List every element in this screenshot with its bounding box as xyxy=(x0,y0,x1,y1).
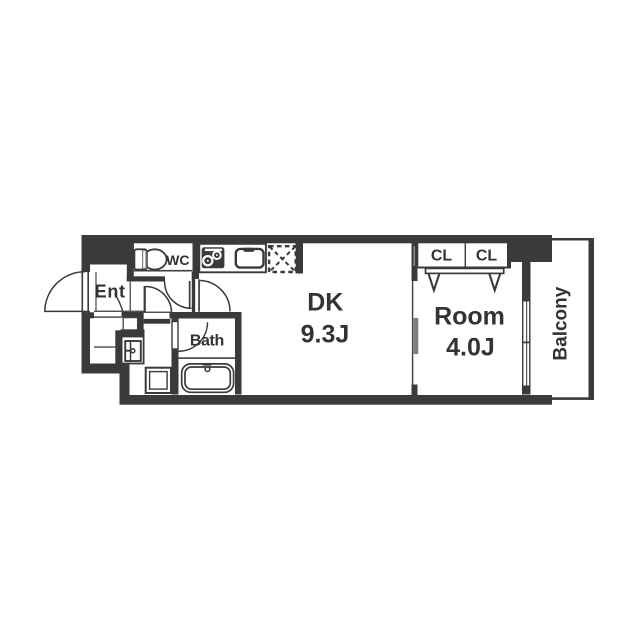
svg-text:CL: CL xyxy=(476,248,498,265)
svg-text:Ent: Ent xyxy=(95,282,126,302)
svg-text:WC: WC xyxy=(166,252,189,268)
svg-text:DK: DK xyxy=(307,288,343,316)
svg-text:Bath: Bath xyxy=(190,332,224,349)
svg-text:4.0J: 4.0J xyxy=(446,334,495,362)
svg-text:Balcony: Balcony xyxy=(551,286,572,360)
svg-text:9.3J: 9.3J xyxy=(301,321,350,349)
svg-text:Room: Room xyxy=(434,302,505,330)
svg-text:CL: CL xyxy=(431,248,453,265)
